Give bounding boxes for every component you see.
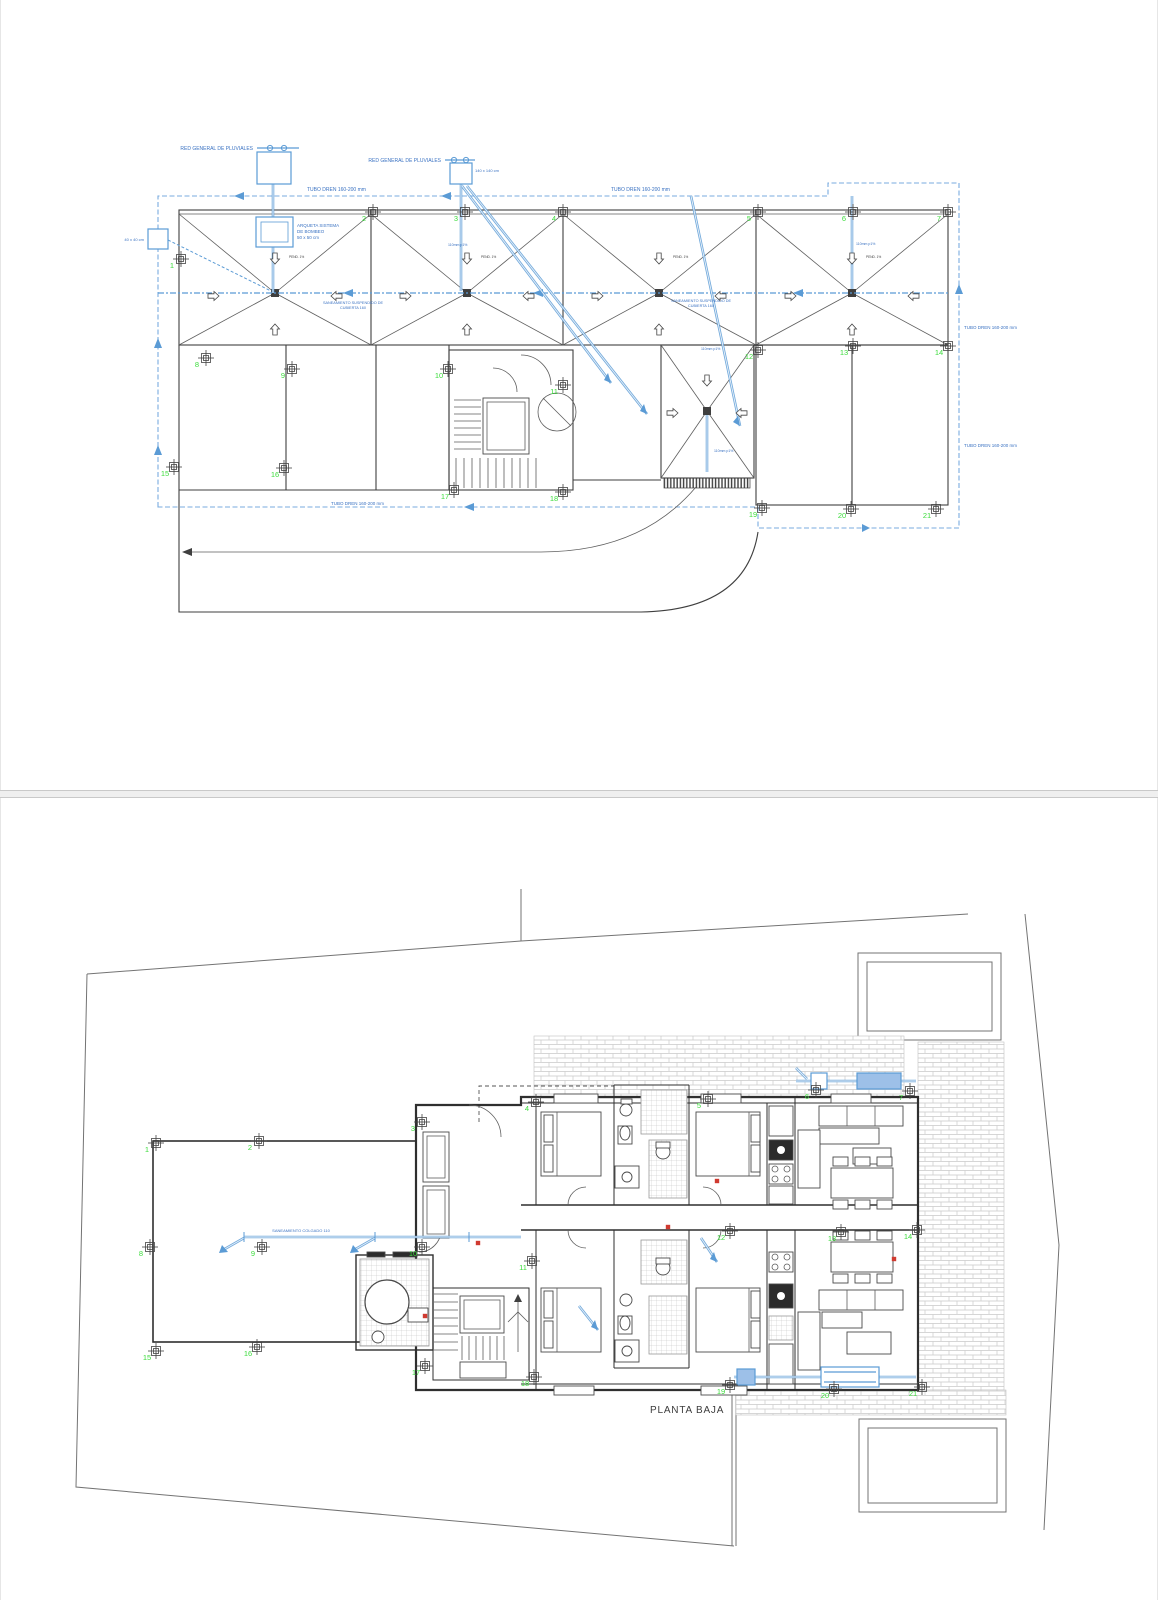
grid-number: 16 xyxy=(271,470,279,479)
bed xyxy=(696,1288,760,1352)
chair xyxy=(877,1157,892,1166)
left-wing xyxy=(356,1132,529,1380)
grid-number: 11 xyxy=(519,1263,527,1272)
lower-apartment xyxy=(541,1231,903,1384)
grid-number: 17 xyxy=(412,1368,420,1377)
label-arqueta-mid: 140 x 140 cm xyxy=(475,168,500,173)
chair xyxy=(833,1157,848,1166)
pendiente-arrow-icon xyxy=(667,409,678,418)
pendiente-arrow-icon xyxy=(703,375,712,386)
grid-number: 13 xyxy=(828,1234,836,1243)
window xyxy=(554,1386,594,1395)
elevator xyxy=(460,1296,504,1333)
dining-table xyxy=(831,1242,893,1272)
pipe-fitting xyxy=(811,1073,827,1089)
grid-number: 13 xyxy=(840,348,848,357)
pendiente-arrow-icon xyxy=(848,324,857,335)
pendiente-arrow-icon xyxy=(463,324,472,335)
label-arqueta-3: 50 x 50 cm xyxy=(297,235,319,240)
pipe-manifold xyxy=(821,1367,879,1387)
pendiente-arrow-icon xyxy=(271,324,280,335)
grid-number: 6 xyxy=(842,214,846,223)
pendiente-label: PEND. 1% xyxy=(673,255,688,259)
grid-number: 14 xyxy=(904,1232,912,1241)
sofa xyxy=(819,1290,903,1310)
storm-piping xyxy=(158,160,948,472)
page-separator xyxy=(0,790,1158,798)
window xyxy=(554,1094,598,1103)
column-marker xyxy=(555,204,571,220)
sofa xyxy=(822,1312,862,1328)
stair-core xyxy=(449,350,576,490)
red-marker xyxy=(892,1257,896,1261)
pendiente-label: PEND. 1% xyxy=(481,255,496,259)
stair-landing xyxy=(460,1362,506,1378)
drain-arrow-icon xyxy=(862,524,870,532)
sofa xyxy=(819,1128,879,1144)
dining-table xyxy=(831,1168,893,1198)
grid-number: 17 xyxy=(441,492,449,501)
pendiente-arrow-icon xyxy=(848,253,857,264)
grid-number: 4 xyxy=(552,214,556,223)
door-arc xyxy=(568,1187,586,1205)
pump-box xyxy=(257,152,291,184)
counter xyxy=(769,1186,793,1204)
grid-number: 9 xyxy=(251,1249,255,1258)
door-arc xyxy=(568,1230,586,1248)
drain-arrow-icon xyxy=(955,284,963,294)
grid-number: 12 xyxy=(717,1233,725,1242)
grid-number: 12 xyxy=(745,352,753,361)
pendiente-arrow-icon xyxy=(655,324,664,335)
fridge xyxy=(769,1106,793,1136)
grid-number: 2 xyxy=(362,214,366,223)
roof-plan-labels: RED GENERAL DE PLUVIALES RED GENERAL DE … xyxy=(124,146,1017,506)
arqueta-bombeo-box xyxy=(256,217,293,247)
page-floor-plan: SANEAMIENTO COLGADO 110 PLANTA BAJA 1234… xyxy=(0,798,1158,1600)
pool-top xyxy=(858,953,1001,1040)
label-arqueta-left: 40 x 40 cm xyxy=(124,237,144,242)
pipe-manifold xyxy=(857,1073,901,1089)
drain-arrow-icon xyxy=(234,192,244,200)
grid-number: 10 xyxy=(409,1249,417,1258)
hatched-grille xyxy=(664,478,750,488)
site-boundary xyxy=(76,889,1059,1546)
column-marker xyxy=(457,204,473,220)
door-arc xyxy=(469,1105,501,1137)
chair xyxy=(877,1274,892,1283)
red-marker xyxy=(476,1241,480,1245)
label-saneamiento-left-1: SANEAMIENTO SUSPENDIDO DE xyxy=(323,301,384,305)
grid-number: 5 xyxy=(747,214,751,223)
grid-number: 6 xyxy=(805,1092,809,1101)
grid-number: 14 xyxy=(935,348,943,357)
label-tubo-dren-bottom: TUBO DREN 160-200 mm xyxy=(331,501,384,506)
drain-arrow-icon xyxy=(154,338,162,348)
upper-apartment xyxy=(541,1090,903,1209)
arqueta-mid-box xyxy=(450,163,472,184)
grid-number: 15 xyxy=(143,1353,151,1362)
sink xyxy=(620,1104,632,1116)
label-saneamiento-left-2: CUBIERTA 160 xyxy=(340,306,366,310)
bathroom-tiles xyxy=(641,1090,687,1134)
tank xyxy=(365,1280,409,1324)
pool-bottom xyxy=(859,1419,1006,1512)
stair-up-arrow-icon xyxy=(514,1294,522,1302)
chair xyxy=(833,1200,848,1209)
label-tubo-dren-right-upper: TUBO DREN 160-200 mm xyxy=(964,325,1017,330)
roof-grid-numbers: 123456789101112131415161718192021 xyxy=(161,204,956,520)
chair xyxy=(877,1200,892,1209)
plan-title: PLANTA BAJA xyxy=(650,1405,724,1416)
grid-number: 10 xyxy=(435,371,443,380)
grid-number: 20 xyxy=(838,511,846,520)
pantry xyxy=(769,1316,793,1340)
label-riser-note: 110mm p1% xyxy=(856,242,875,246)
grid-number: 2 xyxy=(248,1143,252,1152)
column-marker xyxy=(198,350,214,366)
label-red-general-right: RED GENERAL DE PLUVIALES xyxy=(368,158,441,164)
pipe-fitting xyxy=(737,1369,755,1385)
pendiente-arrow-icon xyxy=(463,253,472,264)
column-marker xyxy=(148,1135,164,1151)
door-arc xyxy=(703,1187,721,1205)
pipe-arrow-icon xyxy=(343,289,353,297)
label-tubo-dren-top-left: TUBO DREN 160-200 mm xyxy=(307,187,366,193)
grid-number: 3 xyxy=(411,1124,415,1133)
label-saneamiento-center-1: SANEAMIENTO SUSPENDIDO DE xyxy=(671,299,732,303)
chair xyxy=(877,1231,892,1240)
label-arqueta-2: DE BOMBEO xyxy=(297,229,325,234)
red-marker xyxy=(423,1314,427,1318)
grid-number: 1 xyxy=(145,1145,149,1154)
label-red-general-left: RED GENERAL DE PLUVIALES xyxy=(180,146,253,152)
drain-arrow-icon xyxy=(441,192,451,200)
chair xyxy=(855,1274,870,1283)
column-marker xyxy=(365,204,381,220)
grid-number: 18 xyxy=(550,494,558,503)
label-tubo-dren-right-lower: TUBO DREN 160-200 mm xyxy=(964,443,1017,448)
drain xyxy=(372,1331,384,1343)
label-riser-note: 110mm p1% xyxy=(714,449,733,453)
roof-plan-drawing: RED GENERAL DE PLUVIALES RED GENERAL DE … xyxy=(1,0,1158,790)
pendiente-label: PEND. 1% xyxy=(866,255,881,259)
bathroom-tiles xyxy=(649,1296,687,1354)
red-marker xyxy=(666,1225,670,1229)
drain-arrow-icon xyxy=(154,445,162,455)
roof-drain xyxy=(703,407,711,415)
grid-number: 7 xyxy=(899,1093,903,1102)
column-marker xyxy=(251,1133,267,1149)
column-marker xyxy=(142,1239,158,1255)
sofa xyxy=(819,1106,903,1126)
column-marker xyxy=(940,204,956,220)
grid-number: 18 xyxy=(521,1379,529,1388)
grid-number: 19 xyxy=(749,510,757,519)
grid-number: 11 xyxy=(550,387,558,396)
bed xyxy=(696,1112,760,1176)
arqueta-left-box xyxy=(148,229,168,249)
drain-arrow-icon xyxy=(464,503,474,511)
sofa xyxy=(798,1130,820,1188)
grid-number: 3 xyxy=(454,214,458,223)
pendiente-arrow-icon xyxy=(655,253,664,264)
window xyxy=(831,1094,871,1103)
grid-number: 4 xyxy=(525,1104,529,1113)
page-roof-plan: RED GENERAL DE PLUVIALES RED GENERAL DE … xyxy=(0,0,1158,790)
grid-number: 8 xyxy=(139,1249,143,1258)
sink xyxy=(620,1294,632,1306)
chair xyxy=(855,1231,870,1240)
grid-number: 20 xyxy=(821,1391,829,1400)
column-marker xyxy=(173,251,189,267)
column-marker xyxy=(845,204,861,220)
grid-number: 19 xyxy=(717,1387,725,1396)
chair xyxy=(855,1200,870,1209)
label-arqueta-1: ARQUETA SISTEMA xyxy=(297,223,339,228)
label-saneamiento-colgado: SANEAMIENTO COLGADO 110 xyxy=(272,1228,330,1233)
grid-number: 5 xyxy=(697,1101,701,1110)
coffee-table xyxy=(847,1332,891,1354)
chair xyxy=(833,1274,848,1283)
pendiente-label: PEND. 1% xyxy=(289,255,304,259)
grid-number: 15 xyxy=(161,469,169,478)
column-marker xyxy=(254,1239,270,1255)
label-riser-note: 110mm p1% xyxy=(701,347,720,351)
label-tubo-dren-top-right: TUBO DREN 160-200 mm xyxy=(611,187,670,193)
flow-arrow-icon xyxy=(182,548,192,556)
sofa xyxy=(798,1312,820,1370)
label-riser-note: 110mm p1% xyxy=(448,243,467,247)
column-marker xyxy=(750,204,766,220)
label-saneamiento-center-2: CUBIERTA 160 xyxy=(688,304,714,308)
grid-number: 1 xyxy=(170,261,174,270)
grid-number: 8 xyxy=(195,360,199,369)
red-marker xyxy=(715,1179,719,1183)
floor-plan-drawing: SANEAMIENTO COLGADO 110 PLANTA BAJA 1234… xyxy=(1,798,1158,1600)
grid-number: 16 xyxy=(244,1349,252,1358)
grid-number: 21 xyxy=(923,511,931,520)
grid-number: 9 xyxy=(281,371,285,380)
chair xyxy=(855,1157,870,1166)
grid-number: 7 xyxy=(937,214,941,223)
grid-number: 21 xyxy=(909,1389,917,1398)
